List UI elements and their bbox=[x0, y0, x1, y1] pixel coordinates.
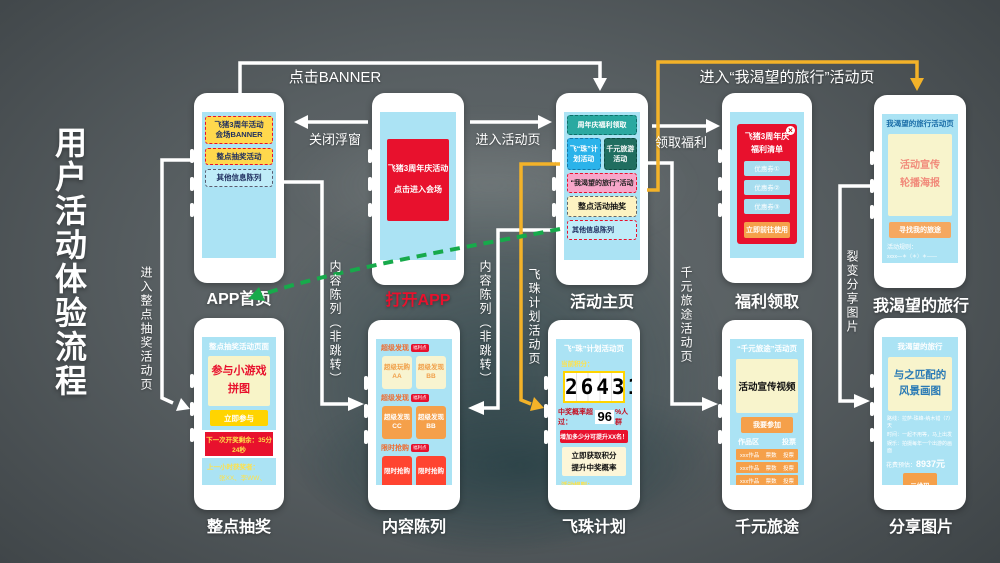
share-pic-screen: 我渴望的旅行 与之匹配的 风景画图 路线：拉萨-珠峰-纳木错（7）天 时间：一起… bbox=[882, 337, 958, 485]
phone-label-activity-home: 活动主页 bbox=[552, 288, 652, 312]
phone-label-welfare-claim: 福利领取 bbox=[717, 288, 817, 312]
hourly-draw-screen: 整点抽奖活动页面 参与小游戏 拼图 立即参与 下一次开奖剩余：35分24秒 上一… bbox=[202, 337, 276, 485]
coupon-2[interactable]: 优惠券② bbox=[744, 180, 790, 195]
vote-count: 票数 bbox=[766, 464, 777, 472]
content-card[interactable]: 超级发现 CC bbox=[382, 406, 412, 439]
route-line: 路线：拉萨-珠峰-纳木错（7）天 bbox=[887, 415, 953, 429]
phone-side-button bbox=[870, 151, 874, 165]
phone-side-button bbox=[364, 430, 368, 444]
phone-side-button bbox=[552, 177, 556, 191]
phone-label-app-home: APP首页 bbox=[189, 285, 289, 309]
phone-side-button bbox=[368, 177, 372, 191]
phone-thousand-trip: “千元旅途”活动页 活动宣传视频 我要参加 作品区投票 xxx作品票数投票 xx… bbox=[722, 320, 812, 510]
slide-background: 用户活动体验流程 飞猪3周年活动 会场BANNER 整点抽奖活动 其他信息陈列 … bbox=[0, 0, 1000, 563]
rules-label: 活动规则： bbox=[887, 242, 953, 251]
edge-label-content-list-right: 内容陈列（非跳转） bbox=[477, 260, 494, 386]
phone-side-button bbox=[190, 149, 194, 163]
cost-line: 花费预估：8937元 bbox=[886, 457, 954, 470]
desired-trip-screen: 我渴望的旅行活动页 活动宣传 轮播海报 寻找我的旅途 活动规则： xxxx—＊（… bbox=[882, 114, 958, 263]
phone-app-home: 飞猪3周年活动 会场BANNER 整点抽奖活动 其他信息陈列 bbox=[194, 93, 284, 283]
phone-pearl-plan: 飞“珠”计划活动页 当前积分： 26431 中奖概率超过：96%人群 增加多少分… bbox=[548, 320, 640, 510]
page-header: 我渴望的旅行活动页 bbox=[882, 118, 958, 129]
work-row: xxx作品票数投票 bbox=[736, 462, 798, 473]
content-card[interactable]: 超级发现 BB bbox=[416, 406, 446, 439]
phone-side-button bbox=[190, 374, 194, 388]
qr-code[interactable]: 二维码 bbox=[903, 473, 937, 485]
phone-label-thousand-trip: 千元旅途 bbox=[717, 513, 817, 537]
phone-side-button bbox=[870, 179, 874, 193]
activity-home-screen: 周年庆福利领取 飞“珠”计划活动 千元旅游活动 “我渴望的旅行”活动 整点活动抽… bbox=[564, 112, 640, 260]
phone-content-list: 超级发现福利点 超级玩购 AA 超级发现 BB 超级发现福利点 超级发现 CC … bbox=[368, 320, 460, 510]
join-now-button[interactable]: 立即参与 bbox=[210, 410, 268, 426]
rules-label: 活动规则： bbox=[561, 479, 627, 485]
work-row: xxx作品票数投票 bbox=[736, 449, 798, 460]
phone-activity-home: 周年庆福利领取 飞“珠”计划活动 千元旅游活动 “我渴望的旅行”活动 整点活动抽… bbox=[556, 93, 648, 285]
boost-banner: 增加多少分可提升XX名！ bbox=[560, 430, 628, 443]
phone-side-button bbox=[718, 149, 722, 163]
edge-label-close-float: 关闭浮窗 bbox=[300, 129, 370, 148]
content-card[interactable]: 超级玩购 AA bbox=[382, 356, 412, 389]
vote-column: 投票 bbox=[782, 437, 796, 447]
edge-label-content-list-left: 内容陈列（非跳转） bbox=[327, 260, 344, 386]
promo-carousel[interactable]: 活动宣传 轮播海报 bbox=[888, 134, 952, 216]
desired-trip-entry[interactable]: “我渴望的旅行”活动 bbox=[567, 173, 637, 193]
phone-open-app: 飞猪3周年庆活动 点击进入会场 bbox=[372, 93, 464, 285]
page-header: “千元旅途”活动页 bbox=[730, 343, 804, 354]
section-header: 超级发现福利点 bbox=[381, 393, 447, 403]
fun-line: 娱乐：拍摄每年一个出游的画面 bbox=[887, 440, 953, 454]
welfare-claim-screen: × 飞猪3周年庆 福利清单 优惠券① 优惠券② 优惠券③ 立即前往使用 bbox=[730, 112, 804, 258]
banner-box[interactable]: 飞猪3周年活动 会场BANNER bbox=[205, 116, 273, 144]
coupon-1[interactable]: 优惠券① bbox=[744, 161, 790, 176]
phone-side-button bbox=[718, 404, 722, 418]
edge-label-click-banner: 点击BANNER bbox=[260, 66, 410, 87]
content-card[interactable]: 限时抢购 bbox=[416, 456, 446, 485]
time-line: 时间：一起不用等，马上出发 bbox=[887, 431, 953, 438]
page-header: 整点抽奖活动页面 bbox=[202, 341, 276, 352]
hourly-draw-entry[interactable]: 整点活动抽奖 bbox=[567, 196, 637, 217]
pearl-plan-screen: 飞“珠”计划活动页 当前积分： 26431 中奖概率超过：96%人群 增加多少分… bbox=[556, 339, 632, 485]
probability-prefix: 中奖概率超过： bbox=[558, 407, 594, 427]
vote-count: 票数 bbox=[766, 477, 777, 485]
phone-side-button bbox=[718, 376, 722, 390]
phone-label-open-app: 打开APP bbox=[368, 286, 468, 310]
section-title: 超级发现 bbox=[381, 393, 409, 403]
phone-side-button bbox=[190, 203, 194, 217]
coupon-3[interactable]: 优惠券③ bbox=[744, 199, 790, 214]
phone-side-button bbox=[364, 404, 368, 418]
find-trip-button[interactable]: 寻找我的旅途 bbox=[889, 222, 951, 238]
phone-side-button bbox=[190, 428, 194, 442]
vote-count: 票数 bbox=[766, 451, 777, 459]
phone-side-button bbox=[544, 404, 548, 418]
thousand-trip-screen: “千元旅途”活动页 活动宣传视频 我要参加 作品区投票 xxx作品票数投票 xx… bbox=[730, 339, 804, 485]
splash-banner[interactable]: 飞猪3周年庆活动 点击进入会场 bbox=[387, 139, 449, 221]
phone-side-button bbox=[718, 430, 722, 444]
winners-list: 张XX、李WW、王OO bbox=[207, 472, 271, 485]
phone-side-button bbox=[870, 402, 874, 416]
edge-label-pearl-plan: 飞珠计划活动页 bbox=[526, 268, 543, 366]
puzzle-game-box[interactable]: 参与小游戏 拼图 bbox=[208, 356, 270, 406]
vote-table-header: 作品区投票 bbox=[738, 437, 796, 447]
phone-desired-trip: 我渴望的旅行活动页 活动宣传 轮播海报 寻找我的旅途 活动规则： xxxx—＊（… bbox=[874, 95, 966, 288]
vote-button[interactable]: 投票 bbox=[783, 464, 794, 472]
phone-label-hourly-draw: 整点抽奖 bbox=[189, 513, 289, 537]
welfare-popup: × 飞猪3周年庆 福利清单 优惠券① 优惠券② 优惠券③ 立即前往使用 bbox=[737, 124, 797, 244]
work-row: xxx作品票数投票 bbox=[736, 475, 798, 485]
welfare-badge: 福利点 bbox=[411, 394, 429, 402]
phone-side-button bbox=[368, 149, 372, 163]
phone-label-desired-trip: 我渴望的旅行 bbox=[866, 292, 976, 316]
work-name: xxx作品 bbox=[740, 451, 759, 459]
points-counter: 26431 bbox=[563, 371, 625, 403]
welfare-entry[interactable]: 周年庆福利领取 bbox=[567, 115, 637, 135]
phone-side-button bbox=[368, 203, 372, 217]
page-header: 我渴望的旅行 bbox=[882, 341, 958, 352]
page-header: 飞“珠”计划活动页 bbox=[556, 343, 632, 354]
cost-value: 8937元 bbox=[916, 459, 945, 469]
other-info-box: 其他信息陈列 bbox=[567, 220, 637, 240]
edge-label-enter-hourly-draw: 进入整点抽奖活动页 bbox=[138, 266, 155, 392]
hourly-draw-entry[interactable]: 整点抽奖活动 bbox=[205, 148, 273, 166]
phone-label-content-list: 内容陈列 bbox=[364, 513, 464, 537]
section-title: 限时抢购 bbox=[381, 443, 409, 453]
phone-hourly-draw: 整点抽奖活动页面 参与小游戏 拼图 立即参与 下一次开奖剩余：35分24秒 上一… bbox=[194, 318, 284, 510]
edge-label-enter-desired-trip: 进入“我渴望的旅行”活动页 bbox=[672, 66, 902, 87]
content-list-screen: 超级发现福利点 超级玩购 AA 超级发现 BB 超级发现福利点 超级发现 CC … bbox=[376, 339, 452, 485]
phone-side-button bbox=[544, 430, 548, 444]
phone-side-button bbox=[552, 149, 556, 163]
arrow-enter-activity bbox=[470, 115, 552, 129]
thousand-trip-entry[interactable]: 千元旅游活动 bbox=[604, 138, 638, 170]
edge-label-thousand-trip: 千元旅途活动页 bbox=[678, 266, 695, 364]
phone-label-pearl-plan: 飞珠计划 bbox=[544, 513, 644, 537]
phone-side-button bbox=[544, 376, 548, 390]
phone-side-button bbox=[190, 402, 194, 416]
get-points-button[interactable]: 立即获取积分 提升中奖概率 bbox=[562, 447, 626, 476]
countdown-text: 下一次开奖剩余：35分24秒 bbox=[205, 432, 273, 456]
phone-side-button bbox=[552, 203, 556, 217]
rules-text: xxxx—＊（＊）＊—— bbox=[887, 253, 953, 260]
phone-side-button bbox=[364, 376, 368, 390]
phone-side-button bbox=[718, 203, 722, 217]
vote-button[interactable]: 投票 bbox=[783, 451, 794, 459]
phone-side-button bbox=[190, 177, 194, 191]
welfare-badge: 福利点 bbox=[411, 444, 429, 452]
work-name: xxx作品 bbox=[740, 464, 759, 472]
content-card[interactable]: 限时抢购 bbox=[382, 456, 412, 485]
phone-label-share-pic: 分享图片 bbox=[866, 513, 976, 537]
arrow-claim-welfare bbox=[652, 119, 720, 133]
pearl-plan-entry[interactable]: 飞“珠”计划活动 bbox=[567, 138, 601, 170]
phone-side-button bbox=[870, 205, 874, 219]
phone-share-pic: 我渴望的旅行 与之匹配的 风景画图 路线：拉萨-珠峰-纳木错（7）天 时间：一起… bbox=[874, 318, 966, 510]
points-label: 当前积分： bbox=[561, 358, 627, 368]
winners-label: 上一小时获奖者： bbox=[207, 461, 271, 471]
promo-video[interactable]: 活动宣传视频 bbox=[736, 359, 798, 413]
phone-side-button bbox=[870, 428, 874, 442]
other-info-box: 其他信息陈列 bbox=[205, 169, 273, 187]
works-column: 作品区 bbox=[738, 437, 759, 447]
probability-value: 96 bbox=[595, 410, 613, 424]
section-header: 超级发现福利点 bbox=[381, 343, 447, 353]
section-title: 超级发现 bbox=[381, 343, 409, 353]
page-title: 用户活动体验流程 bbox=[46, 126, 92, 398]
open-app-screen: 飞猪3周年庆活动 点击进入会场 bbox=[380, 112, 456, 260]
phone-welfare-claim: × 飞猪3周年庆 福利清单 优惠券① 优惠券② 优惠券③ 立即前往使用 bbox=[722, 93, 812, 283]
cost-label: 花费预估： bbox=[886, 463, 916, 469]
probability-suffix: %人群 bbox=[615, 407, 630, 427]
scenery-picture: 与之匹配的 风景画图 bbox=[888, 357, 952, 411]
app-home-screen: 飞猪3周年活动 会场BANNER 整点抽奖活动 其他信息陈列 bbox=[202, 112, 276, 258]
work-name: xxx作品 bbox=[740, 477, 759, 485]
join-button[interactable]: 我要参加 bbox=[741, 417, 793, 433]
arrow-content-list-left bbox=[278, 182, 364, 411]
vote-button[interactable]: 投票 bbox=[783, 477, 794, 485]
phone-side-button bbox=[718, 177, 722, 191]
edge-label-fission-share: 裂变分享图片 bbox=[844, 250, 861, 334]
edge-label-enter-activity: 进入活动页 bbox=[472, 129, 544, 148]
close-icon[interactable]: × bbox=[786, 126, 795, 135]
edge-label-claim-welfare: 领取福利 bbox=[650, 132, 712, 151]
section-header: 限时抢购福利点 bbox=[381, 443, 447, 453]
phone-side-button bbox=[870, 374, 874, 388]
countdown-strip: 下一次开奖剩余：35分24秒 bbox=[202, 430, 276, 458]
arrow-close-float bbox=[294, 115, 368, 129]
probability-line: 中奖概率超过：96%人群 bbox=[558, 407, 630, 427]
welfare-badge: 福利点 bbox=[411, 344, 429, 352]
use-now-button[interactable]: 立即前往使用 bbox=[744, 222, 790, 238]
content-card[interactable]: 超级发现 BB bbox=[416, 356, 446, 389]
